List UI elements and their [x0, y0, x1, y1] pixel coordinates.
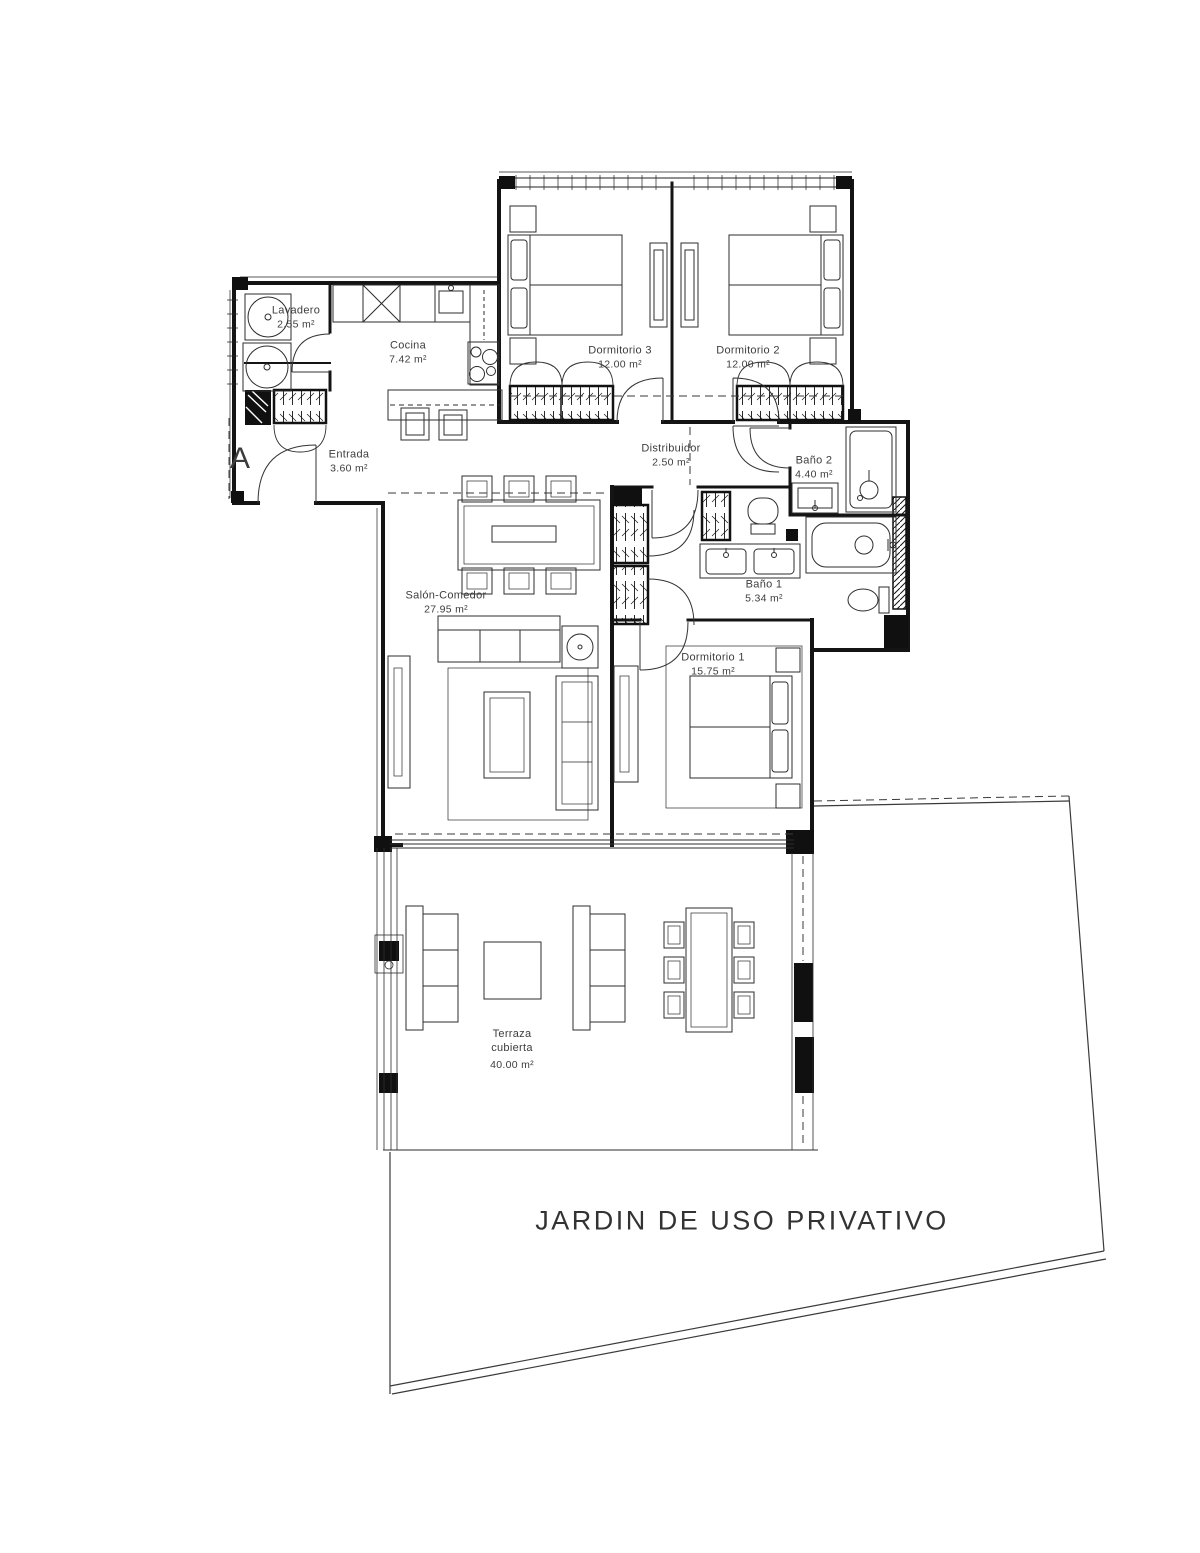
bedroom3-furniture — [508, 206, 622, 364]
layer-windows — [227, 172, 852, 845]
room-label-bano-2: Baño 2 4.40 m² — [795, 455, 833, 482]
terrace-structure — [375, 840, 818, 1150]
garden-label: JARDIN DE USO PRIVATIVO — [535, 1206, 949, 1237]
room-label-terraza: Terraza cubierta 40.00 m² — [490, 1028, 534, 1073]
bedroom2-furniture — [650, 206, 843, 364]
section-marker-a: A — [230, 442, 250, 476]
room-label-entrada: Entrada 3.60 m² — [329, 449, 370, 476]
room-label-dormitorio-1: Dormitorio 1 15.75 m² — [681, 652, 745, 679]
terrace-furniture — [406, 906, 754, 1032]
room-label-bano-1: Baño 1 5.34 m² — [745, 579, 783, 606]
living-room-furniture — [388, 476, 600, 820]
garden-boundary — [390, 796, 1106, 1394]
floor-plan-drawing — [0, 0, 1200, 1553]
entrada-shaft — [245, 390, 271, 425]
room-label-dormitorio-3: Dormitorio 3 12.00 m² — [588, 345, 652, 372]
room-label-distribuidor: Distribuidor 2.50 m² — [641, 443, 700, 470]
room-label-cocina: Cocina 7.42 m² — [389, 340, 427, 367]
room-label-salon-comedor: Salón-Comedor 27.95 m² — [406, 590, 487, 617]
room-label-dormitorio-2: Dormitorio 2 12.00 m² — [716, 345, 780, 372]
floor-plan-canvas: Lavadero 2.55 m² Cocina 7.42 m² Entrada … — [0, 0, 1200, 1553]
room-label-lavadero: Lavadero 2.55 m² — [272, 305, 320, 332]
